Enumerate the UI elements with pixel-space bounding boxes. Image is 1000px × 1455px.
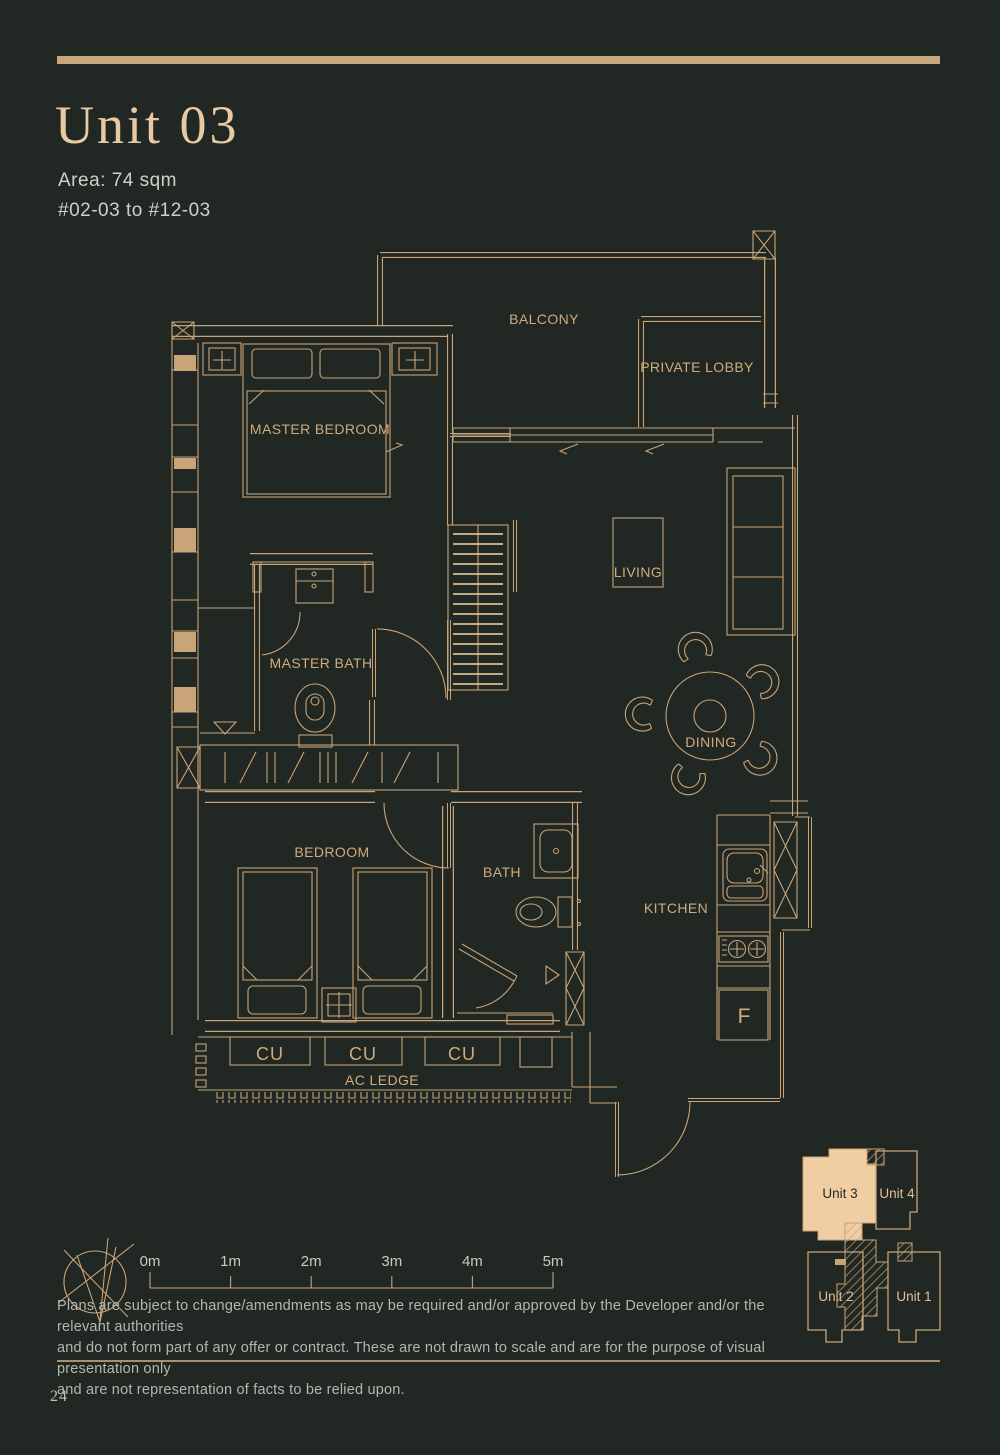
label-dining: DINING <box>685 734 736 750</box>
bedroom-side-table <box>322 988 356 1022</box>
single-bed-1 <box>238 868 317 1018</box>
label-cu-1: CU <box>256 1044 284 1064</box>
sofa <box>727 468 795 635</box>
bath-toilet <box>516 897 581 927</box>
bath-shower-door <box>459 944 559 1024</box>
label-master-bedroom: MASTER BEDROOM <box>250 421 390 437</box>
scale-tick-5m: 5m <box>543 1253 564 1270</box>
key-plan-shaft-mid <box>898 1243 912 1261</box>
label-ac-ledge: AC LEDGE <box>345 1072 419 1088</box>
label-bedroom: BEDROOM <box>294 844 369 860</box>
scale-tick-1m: 1m <box>220 1253 241 1270</box>
key-plan-core-shape <box>837 1223 888 1330</box>
ac-ledge <box>196 1037 571 1103</box>
label-bath: BATH <box>483 864 521 880</box>
key-plan-tick <box>835 1259 846 1265</box>
master-bath-toilet <box>295 684 335 747</box>
label-master-bath: MASTER BATH <box>270 655 373 671</box>
label-kitchen: KITCHEN <box>644 900 708 916</box>
label-cu-2: CU <box>349 1044 377 1064</box>
disclaimer-line-1: Plans are subject to change/amendments a… <box>57 1296 817 1338</box>
scale-tick-0m: 0m <box>140 1253 161 1270</box>
label-living: LIVING <box>614 564 662 580</box>
scale-tick-2m: 2m <box>301 1253 322 1270</box>
page-number: 24 <box>50 1388 68 1406</box>
scale-tick-4m: 4m <box>462 1253 483 1270</box>
shower <box>214 722 236 734</box>
slide-direction-marks <box>386 443 664 454</box>
louver-cabinet <box>448 525 508 690</box>
disclaimer: Plans are subject to change/amendments a… <box>57 1296 817 1401</box>
bottom-divider <box>57 1360 940 1362</box>
kitchen-stove <box>719 936 768 962</box>
floor-plan-graphics: BALCONY PRIVATE LOBBY MASTER BEDROOM MAS… <box>0 0 1000 1455</box>
dining-table <box>625 629 786 800</box>
scale-bar: 0m 1m 2m 3m 4m 5m <box>140 1253 564 1288</box>
label-private-lobby: PRIVATE LOBBY <box>640 359 754 375</box>
scale-tick-3m: 3m <box>381 1253 402 1270</box>
label-balcony: BALCONY <box>509 311 579 327</box>
key-plan-unit3-label: Unit 3 <box>822 1186 857 1201</box>
bath-sink <box>534 824 578 878</box>
key-plan-unit4-label: Unit 4 <box>879 1186 915 1201</box>
brochure-page: Unit 03 Area: 74 sqm #02-03 to #12-03 <box>0 0 1000 1455</box>
key-plan-shaft-top <box>867 1149 884 1165</box>
disclaimer-line-2: and do not form part of any offer or con… <box>57 1338 817 1380</box>
single-bed-2 <box>353 868 432 1018</box>
key-plan-unit2-label: Unit 2 <box>818 1289 853 1304</box>
key-plan-unit1-label: Unit 1 <box>896 1289 931 1304</box>
key-plan: Unit 3 Unit 4 Unit 2 Unit 1 <box>803 1149 940 1342</box>
label-cu-3: CU <box>448 1044 476 1064</box>
label-fridge: F <box>738 1005 751 1028</box>
floor-plan: BALCONY PRIVATE LOBBY MASTER BEDROOM MAS… <box>172 231 810 1177</box>
master-bath-vanity <box>253 562 373 603</box>
disclaimer-line-3: and are not representation of facts to b… <box>57 1380 817 1401</box>
wardrobe <box>200 745 458 790</box>
